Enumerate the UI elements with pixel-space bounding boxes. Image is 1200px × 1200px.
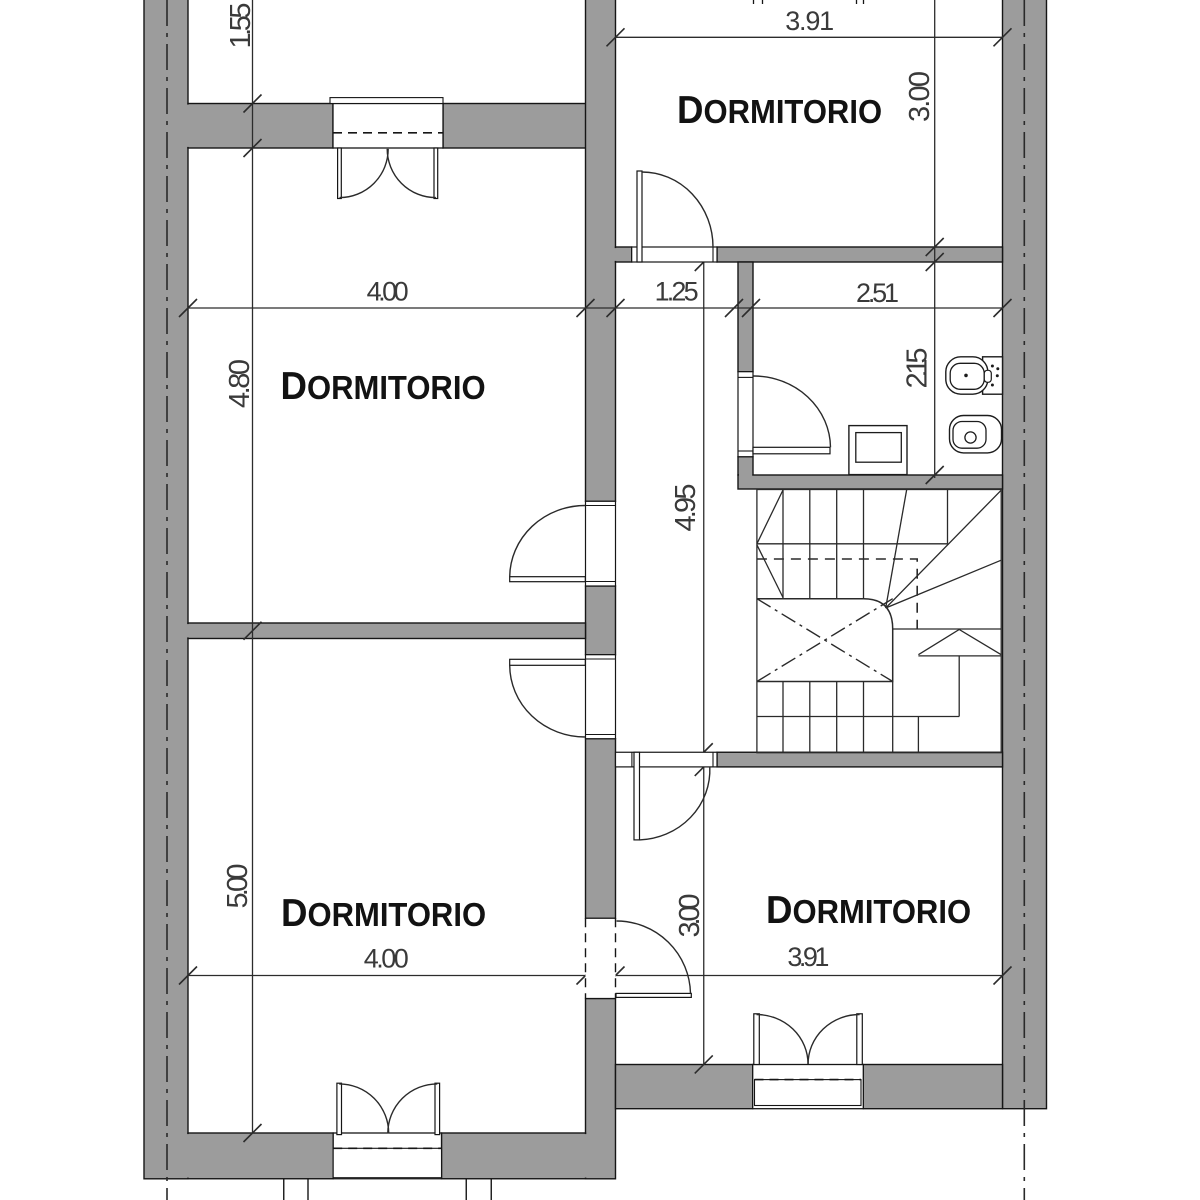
svg-text:4.80: 4.80 [224, 359, 256, 408]
svg-text:DORMITORIO: DORMITORIO [281, 365, 486, 408]
svg-text:DORMITORIO: DORMITORIO [281, 892, 486, 935]
svg-text:3.00: 3.00 [674, 894, 706, 938]
svg-text:4.95: 4.95 [670, 484, 702, 532]
svg-text:3.00: 3.00 [904, 71, 936, 122]
svg-text:2.51: 2.51 [856, 278, 899, 308]
svg-text:4.00: 4.00 [367, 277, 409, 307]
svg-text:DORMITORIO: DORMITORIO [766, 889, 971, 932]
svg-text:3.91: 3.91 [785, 6, 834, 36]
svg-text:2.15: 2.15 [902, 348, 934, 389]
svg-text:1.25: 1.25 [655, 277, 699, 307]
svg-text:4.00: 4.00 [364, 943, 409, 973]
svg-text:DORMITORIO: DORMITORIO [677, 89, 882, 132]
svg-text:1.55: 1.55 [225, 3, 257, 49]
svg-text:3.91: 3.91 [787, 942, 829, 972]
svg-text:5.00: 5.00 [222, 864, 254, 909]
